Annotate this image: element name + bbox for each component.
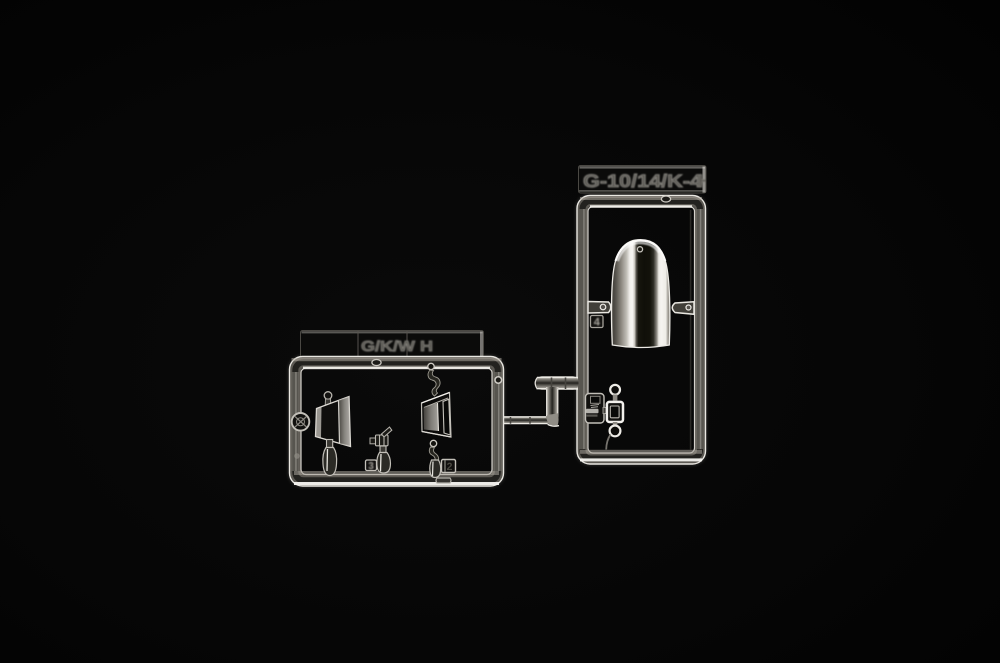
svg-text:3: 3 [368,461,374,472]
svg-text:4: 4 [594,317,601,329]
svg-text:2: 2 [447,461,453,473]
svg-text:G/K/W H: G/K/W H [361,339,433,355]
svg-text:G-10/14/K-4: G-10/14/K-4 [583,171,702,191]
